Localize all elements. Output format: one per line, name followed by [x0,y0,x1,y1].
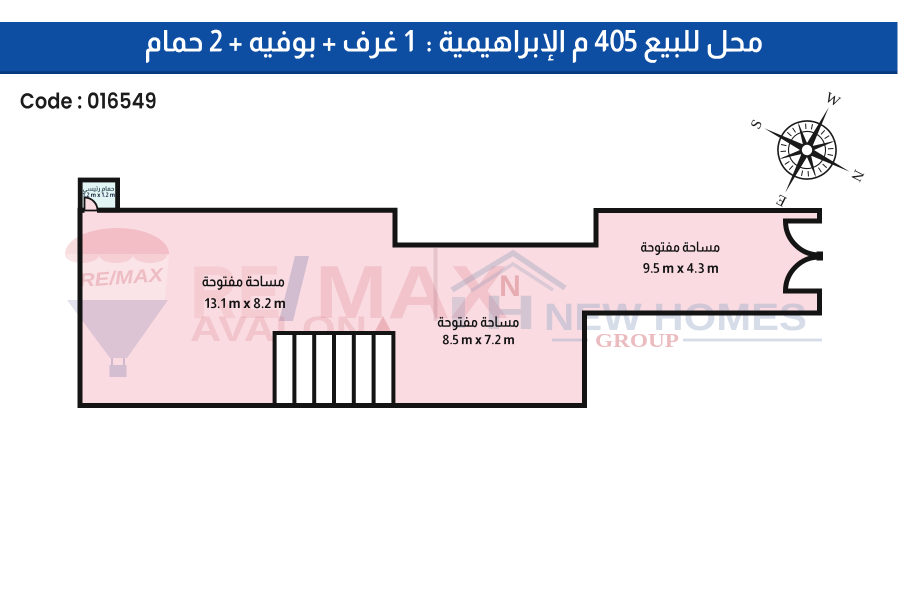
svg-text:GROUP: GROUP [595,330,679,352]
svg-text:H: H [484,287,536,340]
